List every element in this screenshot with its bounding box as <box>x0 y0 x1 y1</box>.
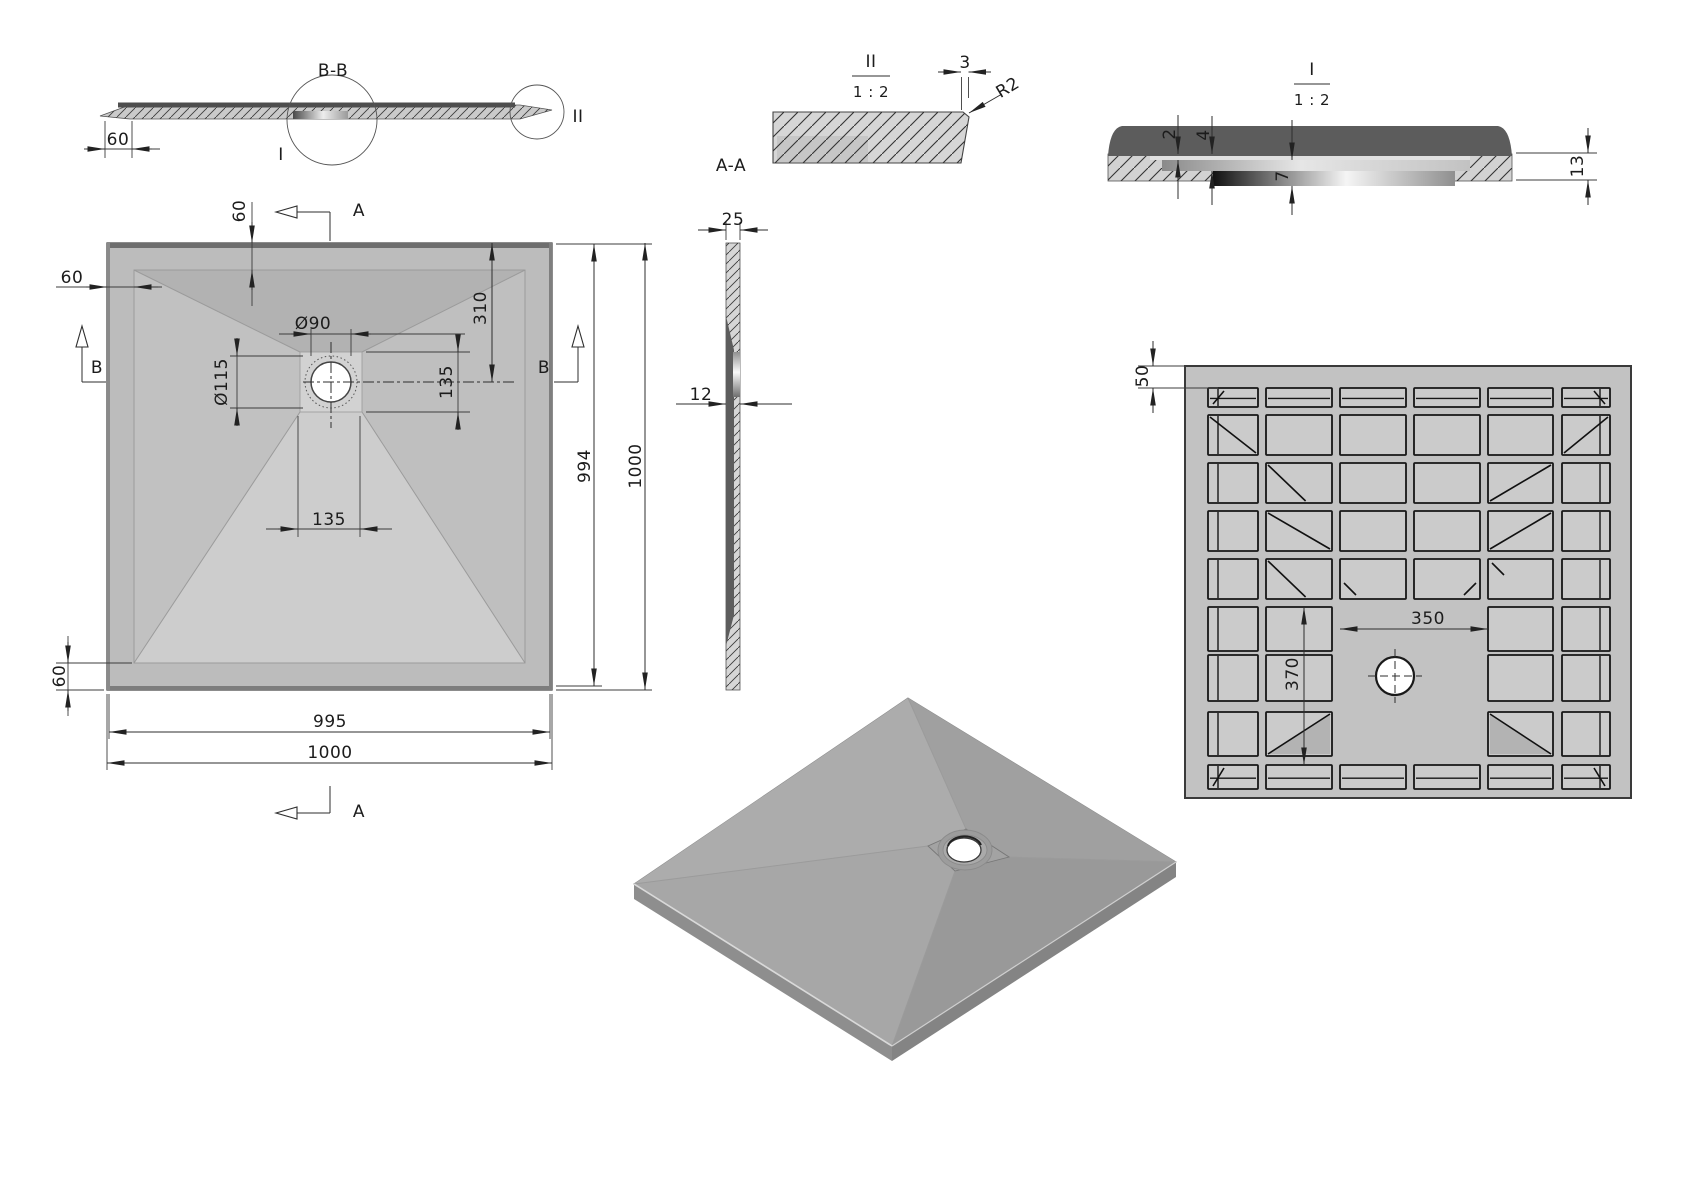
grid-pocket <box>1340 463 1406 503</box>
radius-callout-r2: R2 <box>969 73 1023 113</box>
grid-pocket <box>1266 765 1332 789</box>
grid-pocket <box>1562 607 1610 651</box>
dim-detail-i-13: 13 <box>1516 128 1597 205</box>
dim-label: 3 <box>959 53 970 73</box>
dim-label: 310 <box>471 291 491 325</box>
grid-pocket <box>1266 559 1332 599</box>
grid-pocket <box>1562 765 1610 789</box>
dim-right-1000: 1000 <box>556 243 652 690</box>
detail-ii-scale: 1 : 2 <box>853 83 889 101</box>
grid-pocket <box>1414 415 1480 455</box>
detail-marker-ii: II <box>572 107 583 127</box>
grid-pocket <box>1208 463 1258 503</box>
cut-arrow-a-bottom: A <box>276 786 365 822</box>
grid-pocket <box>1414 463 1480 503</box>
dim-label: 135 <box>312 510 346 530</box>
section-bb-title: B-B <box>318 61 348 81</box>
grid-pocket <box>1340 511 1406 551</box>
top-surface-edge <box>118 103 515 108</box>
grid-pocket <box>1208 559 1258 599</box>
detail-marker-i: I <box>278 145 284 165</box>
grid-pocket <box>1208 388 1258 407</box>
detail-i-scale: 1 : 2 <box>1294 91 1330 109</box>
grid-pocket <box>1208 655 1258 701</box>
cut-arrow-b-left: B <box>76 326 106 382</box>
grid-pocket <box>1488 388 1553 407</box>
dim-label: 350 <box>1411 609 1445 629</box>
cut-label-a: A <box>353 201 365 221</box>
grid-pocket <box>1266 607 1332 651</box>
grid-pocket <box>1488 655 1553 701</box>
grid-pocket <box>1414 559 1480 599</box>
dim-label: 2 <box>1160 128 1180 139</box>
grid-pocket <box>1208 712 1258 756</box>
grid-pocket <box>1208 607 1258 651</box>
dim-bottom-995: 995 <box>109 694 550 739</box>
grid-pocket <box>1488 559 1553 599</box>
cut-label-b: B <box>538 358 550 378</box>
cut-label-b: B <box>91 358 103 378</box>
dim-label: 12 <box>690 385 713 405</box>
grid-pocket <box>1562 559 1610 599</box>
dim-label: 25 <box>722 210 745 230</box>
grid-pocket <box>1340 765 1406 789</box>
dim-label: 60 <box>230 200 250 223</box>
dim-label: 370 <box>1283 657 1303 691</box>
dim-label: 60 <box>107 130 130 150</box>
grid-pocket <box>1266 463 1332 503</box>
grid-pocket <box>1562 463 1610 503</box>
dim-bb-60: 60 <box>84 121 160 158</box>
grid-pocket <box>1414 511 1480 551</box>
grid-pocket <box>1562 712 1610 756</box>
section-aa-view: A-A 25 12 <box>676 156 792 690</box>
drain-ledge <box>1162 160 1470 171</box>
drain-recess-profile <box>293 111 348 119</box>
dim-label: 50 <box>1133 365 1153 388</box>
grid-pocket <box>1488 607 1553 651</box>
sloped-surface-edge <box>726 316 734 646</box>
bottom-view: 50 350 370 <box>1133 341 1631 798</box>
drain-recess-edge <box>733 352 740 397</box>
detail-i-title: I <box>1309 60 1315 80</box>
dim-label: 994 <box>575 449 595 483</box>
technical-drawing: B-B I II 60 II 1 : 2 3 R2 I 1 : 2 2 <box>0 0 1697 1200</box>
cad-drawing-sheet: B-B I II 60 II 1 : 2 3 R2 I 1 : 2 2 <box>0 0 1697 1200</box>
plan-view: A A B B 60 60 Ø90 <box>50 200 652 822</box>
dim-label: 4 <box>1194 129 1214 140</box>
grid-pocket <box>1340 415 1406 455</box>
dim-label: 1000 <box>307 743 352 763</box>
detail-ii-view: II 1 : 2 3 R2 <box>773 52 1023 163</box>
dim-aa-25: 25 <box>698 210 768 240</box>
detail-i-view: I 1 : 2 2 4 7 13 <box>1108 60 1597 215</box>
grid-pocket <box>1208 765 1258 789</box>
dim-label: 60 <box>50 665 70 688</box>
dim-label: 995 <box>313 712 347 732</box>
cut-arrow-a-top: A <box>276 201 365 241</box>
drain-deep-recess <box>1213 171 1455 186</box>
iso-view <box>634 698 1176 1061</box>
grid-pocket <box>1562 655 1610 701</box>
detail-ii-title: II <box>865 52 876 72</box>
section-aa-title: A-A <box>716 156 746 176</box>
grid-pocket <box>1340 559 1406 599</box>
grid-pocket <box>1562 388 1610 407</box>
dim-label: Ø90 <box>295 314 332 334</box>
grid-pocket <box>1414 765 1480 789</box>
section-bb-view: B-B I II 60 <box>84 61 584 165</box>
grid-pocket <box>1266 388 1332 407</box>
iso-drain-hole <box>947 838 981 862</box>
dim-label: 13 <box>1568 155 1588 178</box>
dim-label: 60 <box>61 268 84 288</box>
grid-pocket <box>1266 415 1332 455</box>
dim-label: 7 <box>1273 170 1293 181</box>
grid-pocket <box>1488 415 1553 455</box>
dim-label: 135 <box>437 365 457 399</box>
detail-circle-large <box>287 75 377 165</box>
dim-label: R2 <box>993 73 1024 102</box>
dim-label: Ø115 <box>212 358 232 406</box>
cut-label-a: A <box>353 802 365 822</box>
grid-pocket <box>1340 388 1406 407</box>
dim-label: 1000 <box>626 443 646 488</box>
grid-pocket <box>1208 511 1258 551</box>
grid-pocket <box>1562 511 1610 551</box>
dim-detail-ii-3: 3 <box>938 53 991 110</box>
grid-pocket <box>1414 388 1480 407</box>
grid-pocket <box>1488 765 1553 789</box>
